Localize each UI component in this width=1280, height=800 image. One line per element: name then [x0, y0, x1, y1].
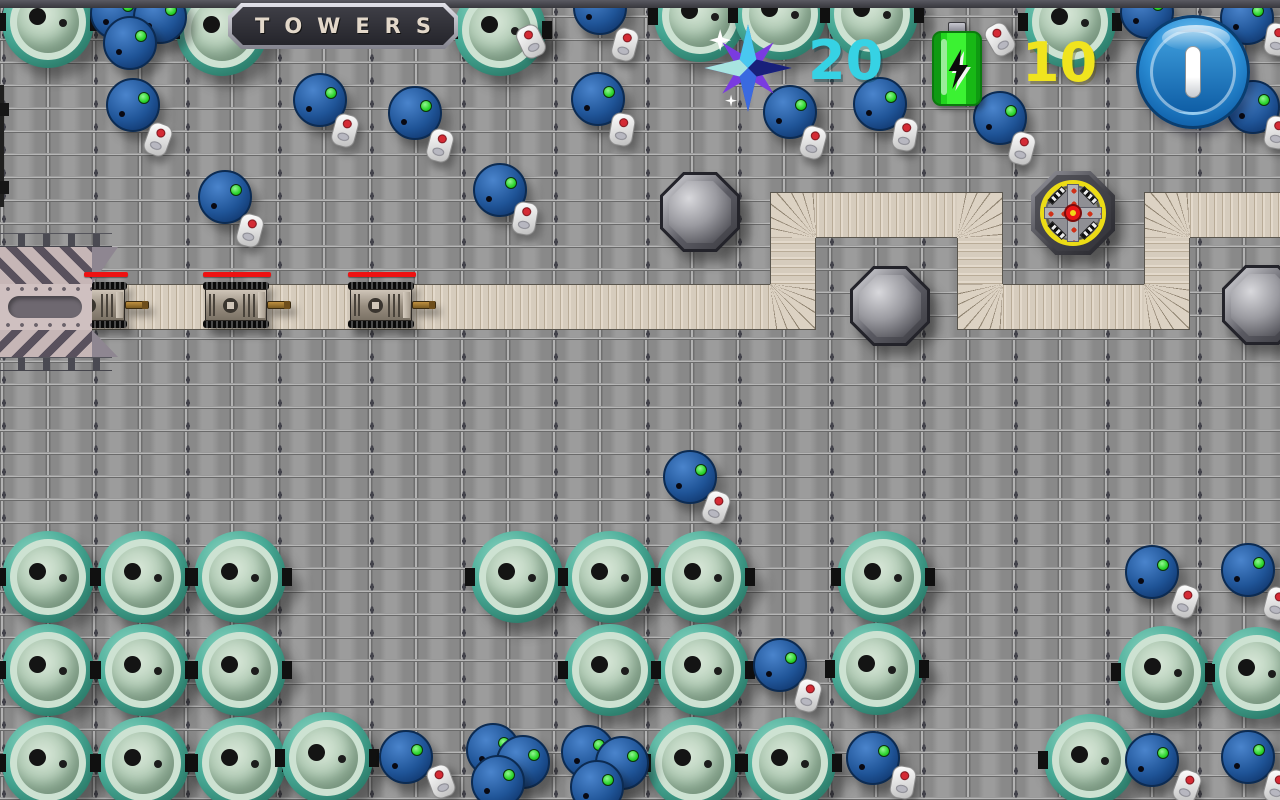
vat-port-large — [1144, 658, 1161, 675]
vat-port-large — [1071, 746, 1088, 763]
vat-clamp-left — [1111, 663, 1121, 681]
tank-health-bar — [84, 272, 128, 277]
vat-clamp-left — [188, 568, 198, 586]
storage-vat — [194, 531, 286, 623]
vat-clamp-left — [188, 661, 198, 679]
path-segment — [957, 238, 1003, 284]
pause-bar — [1185, 46, 1201, 98]
barrel-vent — [1133, 18, 1139, 24]
barrel-vent — [119, 111, 125, 117]
vat-clamp-left — [831, 568, 841, 586]
vat-lid — [759, 732, 821, 794]
vat-clamp-left — [558, 568, 568, 586]
barrel-led-light — [503, 769, 515, 781]
battery-body — [932, 31, 982, 106]
storage-vat — [647, 717, 739, 800]
vat-port-large — [124, 563, 141, 580]
energy-count: 10 — [1022, 36, 1097, 90]
canister-red-cap — [622, 32, 633, 43]
battery-icon — [932, 22, 982, 106]
vat-port-large — [29, 8, 46, 25]
canister-red-cap — [155, 127, 167, 139]
game-stage: TOWERS 20 10 — [0, 0, 1280, 800]
canister-label — [517, 220, 530, 230]
vat-clamp-right — [282, 661, 292, 679]
vat-port-large — [29, 563, 46, 580]
barrel-vent — [866, 110, 872, 116]
tower-socket[interactable] — [1222, 265, 1280, 345]
path-segment — [1190, 192, 1280, 238]
canister-label — [527, 41, 541, 53]
tank-gun-barrel — [267, 301, 291, 309]
tank-health-bar — [203, 272, 271, 277]
blue-barrel — [1125, 733, 1179, 787]
canister-red-cap — [991, 27, 1003, 39]
barrel-vent — [306, 106, 312, 112]
vat-clamp-left — [651, 568, 661, 586]
vat-port-small — [59, 760, 67, 768]
vat-clamp-left — [0, 754, 6, 772]
canister-red-cap — [247, 218, 258, 229]
blue-barrel — [1221, 543, 1275, 597]
barrel-led-light — [785, 652, 797, 664]
battery-gloss — [941, 39, 947, 95]
canister-label — [149, 140, 163, 152]
storage-vat — [831, 623, 923, 715]
vat-port-small — [338, 755, 346, 763]
vat-port-small — [251, 760, 259, 768]
vat-lid — [17, 732, 79, 794]
tank-track — [203, 320, 269, 328]
barrel-vent — [1138, 578, 1144, 584]
tower-socket[interactable] — [850, 266, 930, 346]
tank-track — [348, 320, 414, 328]
vat-port-small — [59, 19, 67, 27]
vat-lid — [296, 727, 358, 789]
vat-port-small — [251, 574, 259, 582]
canister-red-cap — [1274, 774, 1280, 785]
barrel-vent — [1234, 763, 1240, 769]
vat-port-small — [1174, 669, 1182, 677]
vat-lid — [17, 546, 79, 608]
vat-clamp-left — [465, 568, 475, 586]
crystal-star-icon — [702, 22, 794, 114]
canister-red-cap — [805, 683, 816, 694]
vat-port-large — [684, 563, 701, 580]
vat-port-large — [498, 563, 515, 580]
storage-vat — [2, 624, 94, 716]
tank-nose — [403, 292, 410, 318]
vat-lid — [209, 732, 271, 794]
blue-barrel — [471, 755, 525, 800]
storage-vat — [1044, 714, 1136, 800]
vat-lid — [1132, 641, 1194, 703]
vat-clamp-left — [648, 7, 658, 25]
barrel-vent — [486, 196, 492, 202]
storage-vat — [657, 531, 749, 623]
vat-clamp-left — [91, 754, 101, 772]
vat-port-small — [1081, 19, 1089, 27]
storage-vat — [194, 624, 286, 716]
tower-core — [1064, 204, 1082, 222]
canister-red-cap — [713, 495, 725, 507]
path-segment — [1003, 284, 1144, 330]
barrel-led-light — [1157, 747, 1169, 759]
path-segment — [770, 192, 816, 238]
vat-port-large — [1238, 659, 1255, 676]
vat-port-small — [791, 11, 799, 19]
canister-label — [431, 146, 445, 157]
canister-label — [616, 45, 630, 56]
vat-lid — [579, 546, 641, 608]
barrel-vent — [586, 14, 592, 20]
vat-port-small — [704, 760, 712, 768]
vat-lid — [112, 639, 174, 701]
path-segment — [1144, 192, 1190, 238]
storage-vat — [837, 531, 929, 623]
storage-vat — [97, 717, 189, 800]
vat-port-small — [888, 666, 896, 674]
vat-clamp-right — [369, 749, 379, 767]
barrel-vent — [1138, 766, 1144, 772]
vat-clamp-left — [651, 661, 661, 679]
canister-label — [1269, 41, 1280, 51]
towers-sign: TOWERS — [228, 3, 458, 49]
barrel-vent — [484, 788, 490, 794]
barrel-vent — [1234, 576, 1240, 582]
canister-red-cap — [1019, 136, 1030, 147]
canister-label — [1269, 134, 1280, 144]
vat-port-small — [528, 574, 536, 582]
barrel-vent — [583, 793, 589, 799]
barrel-led-light — [1258, 94, 1270, 106]
vat-port-large — [684, 656, 701, 673]
vat-port-large — [203, 16, 220, 33]
barrel-led-light — [230, 184, 242, 196]
vat-port-large — [674, 749, 691, 766]
path-segment — [957, 284, 1003, 330]
storage-vat — [2, 531, 94, 623]
vat-port-small — [154, 574, 162, 582]
barrel-led-light — [885, 91, 897, 103]
spawner-mouth — [0, 284, 92, 330]
canister-label — [614, 131, 627, 141]
barrel-led-light — [411, 744, 423, 756]
vat-port-large — [124, 749, 141, 766]
vat-port-small — [711, 13, 719, 21]
canister-red-cap — [1273, 27, 1280, 37]
barrel-led-light — [878, 745, 890, 757]
canister-label — [996, 39, 1010, 52]
vat-port-large — [29, 749, 46, 766]
canister-red-cap — [1182, 589, 1194, 601]
vat-port-small — [714, 574, 722, 582]
vat-port-large — [591, 563, 608, 580]
tank-nose — [258, 292, 265, 318]
storage-vat — [194, 717, 286, 800]
barrel-vent — [776, 118, 782, 124]
canister-label — [1013, 149, 1027, 160]
vat-clamp-left — [275, 749, 285, 767]
barrel-vent — [103, 19, 109, 25]
vat-lid — [852, 546, 914, 608]
socket-face — [859, 275, 921, 337]
barrel-led-light — [528, 749, 540, 761]
enemy-tank — [203, 282, 291, 328]
vat-port-large — [124, 656, 141, 673]
vat-port-large — [29, 656, 46, 673]
canister-red-cap — [899, 770, 909, 780]
canister-red-cap — [521, 206, 531, 216]
canister-red-cap — [523, 29, 535, 41]
barrel-led-light — [325, 87, 337, 99]
barrel-led-light — [795, 99, 807, 111]
canister-red-cap — [901, 122, 911, 132]
barrel-vent — [676, 483, 682, 489]
offscreen-object-edge — [0, 85, 4, 207]
tank-nose — [116, 292, 123, 318]
canister-label — [1178, 787, 1192, 799]
barrel-led-light — [138, 92, 150, 104]
tank-rear-grille — [209, 294, 217, 316]
path-segment — [1144, 238, 1190, 284]
vat-clamp-left — [1018, 13, 1028, 31]
path-segment — [957, 192, 1003, 238]
vat-port-large — [308, 744, 325, 761]
canister-red-cap — [618, 117, 628, 127]
vat-clamp-left — [0, 13, 6, 31]
canister-red-cap — [342, 118, 353, 129]
vat-lid — [672, 546, 734, 608]
spawner-hazard-stripes — [0, 330, 92, 357]
vat-port-large — [771, 749, 788, 766]
tank-hatch — [368, 298, 383, 313]
vat-port-small — [251, 667, 259, 675]
canister-red-cap — [437, 133, 448, 144]
canister-label — [895, 784, 908, 794]
canister-label — [436, 782, 450, 794]
vat-lid — [112, 546, 174, 608]
crystal-count: 20 — [808, 34, 883, 88]
vat-port-small — [59, 574, 67, 582]
vat-clamp-left — [188, 754, 198, 772]
canister-red-cap — [1184, 774, 1196, 786]
storage-vat — [744, 717, 836, 800]
storage-vat — [471, 531, 563, 623]
vat-lid — [579, 639, 641, 701]
vat-clamp-right — [745, 568, 755, 586]
barrel-led-light — [1005, 105, 1017, 117]
vat-port-large — [221, 656, 238, 673]
barrel-led-light — [627, 750, 639, 762]
barrel-vent — [401, 119, 407, 125]
tank-rear-grille — [354, 294, 362, 316]
vat-port-large — [221, 749, 238, 766]
tank-hull — [205, 289, 267, 321]
spawner-bottom-cap — [0, 357, 112, 371]
vat-clamp-left — [738, 754, 748, 772]
canister-label — [241, 231, 255, 242]
vat-clamp-left — [0, 661, 6, 679]
vat-clamp-left — [91, 661, 101, 679]
vat-port-small — [154, 667, 162, 675]
barrel-vent — [116, 49, 122, 55]
vat-port-large — [864, 563, 881, 580]
canister-label — [1268, 604, 1280, 615]
vat-port-small — [59, 667, 67, 675]
vat-port-large — [1051, 8, 1068, 25]
blue-barrel — [103, 16, 157, 70]
canister-red-cap — [1274, 591, 1280, 602]
storage-vat — [564, 624, 656, 716]
vat-lid — [17, 639, 79, 701]
socket-face — [669, 181, 731, 243]
pause-gloss — [1162, 25, 1230, 51]
sign-face: TOWERS — [232, 7, 454, 45]
barrel-vent — [574, 758, 580, 764]
canister-label — [1268, 787, 1280, 798]
vat-clamp-right — [925, 568, 935, 586]
tank-hull — [350, 289, 412, 321]
vat-clamp-left — [825, 660, 835, 678]
vat-port-small — [883, 11, 891, 19]
vat-clamp-right — [919, 660, 929, 678]
vat-clamp-left — [1038, 751, 1048, 769]
canister-label — [707, 508, 721, 520]
canister-label — [1176, 602, 1190, 614]
tesla-tower[interactable] — [1031, 171, 1115, 255]
barrel-led-light — [602, 774, 614, 786]
vat-lid — [112, 732, 174, 794]
barrel-led-light — [1253, 557, 1265, 569]
enemy-tank — [348, 282, 436, 328]
barrel-vent — [211, 203, 217, 209]
canister-label — [804, 143, 818, 154]
path-segment — [770, 238, 816, 284]
vat-port-large — [858, 655, 875, 672]
vat-port-small — [1268, 670, 1276, 678]
storage-vat — [97, 624, 189, 716]
vat-port-small — [1101, 757, 1109, 765]
vat-clamp-left — [1205, 664, 1215, 682]
barrel-vent — [859, 764, 865, 770]
barrel-vent — [1233, 24, 1239, 30]
vat-port-large — [591, 656, 608, 673]
storage-vat — [564, 531, 656, 623]
spawner-slot — [8, 296, 82, 318]
tank-health-bar — [348, 272, 416, 277]
barrel-led-light — [135, 30, 147, 42]
storage-vat — [97, 531, 189, 623]
vat-port-small — [154, 760, 162, 768]
blue-barrel — [1125, 545, 1179, 599]
barrel-led-light — [420, 100, 432, 112]
spawner-hazard-stripes — [0, 247, 92, 284]
barrel-vent — [986, 124, 992, 130]
canister-red-cap — [433, 769, 445, 781]
tank-gun-barrel — [412, 301, 436, 309]
canister-label — [336, 131, 350, 142]
canister-label — [799, 696, 813, 707]
vat-clamp-left — [0, 568, 6, 586]
vat-lid — [1059, 729, 1121, 791]
pause-button[interactable] — [1136, 15, 1250, 129]
path-segment — [1144, 284, 1190, 330]
storage-vat — [281, 712, 373, 800]
tank-hatch — [223, 298, 238, 313]
storage-vat — [1117, 626, 1209, 718]
canister-label — [897, 136, 910, 146]
vat-clamp-left — [558, 661, 568, 679]
vat-lid — [846, 638, 908, 700]
barrel-led-light — [505, 177, 517, 189]
sign-title: TOWERS — [240, 14, 446, 38]
barrel-vent — [766, 671, 772, 677]
vat-clamp-right — [282, 568, 292, 586]
barrel-led-light — [1157, 559, 1169, 571]
tank-gun-barrel — [125, 301, 149, 309]
vat-port-small — [801, 760, 809, 768]
storage-vat — [657, 624, 749, 716]
vat-lid — [209, 546, 271, 608]
barrel-led-light — [603, 86, 615, 98]
vat-port-large — [481, 16, 498, 33]
vat-clamp-left — [91, 568, 101, 586]
vat-port-small — [621, 574, 629, 582]
vat-port-small — [894, 574, 902, 582]
vat-lid — [209, 639, 271, 701]
canister-red-cap — [1273, 120, 1280, 130]
canister-red-cap — [810, 130, 821, 141]
tower-socket[interactable] — [660, 172, 740, 252]
top-wall-bar — [0, 0, 1280, 8]
vat-lid — [672, 639, 734, 701]
vat-port-large — [221, 563, 238, 580]
vat-clamp-right — [832, 754, 842, 772]
barrel-led-light — [1253, 744, 1265, 756]
barrel-vent — [1239, 113, 1245, 119]
vat-lid — [486, 546, 548, 608]
vat-clamp-right — [542, 21, 552, 39]
barrel-led-light — [695, 464, 707, 476]
vat-port-small — [621, 667, 629, 675]
barrel-vent — [392, 763, 398, 769]
vat-lid — [662, 732, 724, 794]
blue-barrel — [379, 730, 433, 784]
path-segment — [816, 192, 957, 238]
spawner-top-cap — [0, 233, 112, 247]
storage-vat — [2, 717, 94, 800]
barrel-vent — [584, 105, 590, 111]
path-segment — [770, 284, 816, 330]
vat-port-small — [714, 667, 722, 675]
